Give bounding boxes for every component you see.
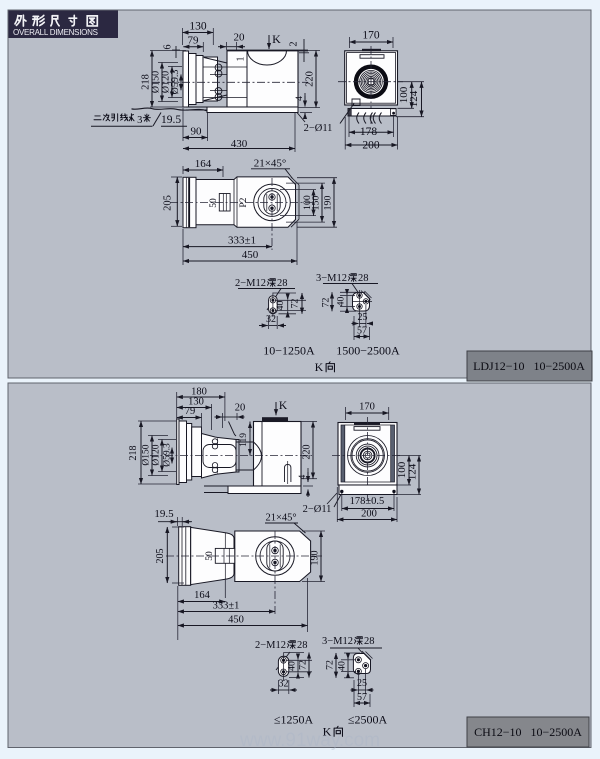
svg-text:1: 1 [236,57,247,62]
svg-text:190: 190 [323,196,334,211]
svg-text:K: K [272,32,281,46]
svg-text:450: 450 [242,249,259,261]
svg-text:205: 205 [155,549,166,564]
svg-text:79: 79 [185,406,196,417]
svg-text:200: 200 [361,509,377,520]
svg-text:10−1250A: 10−1250A [263,344,315,358]
svg-text:21×45°: 21×45° [265,513,296,524]
svg-text:2−Ø11: 2−Ø11 [304,123,333,134]
svg-text:4: 4 [297,474,307,479]
svg-text:218: 218 [128,446,139,461]
svg-text:220: 220 [305,71,316,87]
svg-text:130: 130 [189,21,207,33]
svg-text:333±1: 333±1 [213,601,240,612]
svg-text:40: 40 [287,661,298,671]
svg-text:3: 3 [137,115,142,126]
svg-text:OVERALL DIMENSIONS: OVERALL DIMENSIONS [13,28,98,37]
svg-text:28: 28 [358,273,369,284]
svg-text:430: 430 [231,138,248,150]
svg-text:CH12−10 10−2500A: CH12−10 10−2500A [474,725,582,739]
svg-text:≤1250A: ≤1250A [274,713,314,727]
svg-text:Ø150: Ø150 [142,444,152,465]
svg-text:≤2500A: ≤2500A [348,713,388,727]
svg-text:LDJ12−10 10−2500A: LDJ12−10 10−2500A [473,359,585,373]
svg-text:6: 6 [163,45,174,50]
svg-text:2−M12: 2−M12 [255,640,286,651]
svg-text:57: 57 [357,692,367,703]
svg-text:1500−2500A: 1500−2500A [336,344,400,358]
svg-text:170: 170 [362,30,380,42]
svg-text:205: 205 [163,195,174,211]
svg-text:40: 40 [336,297,347,307]
svg-text:28: 28 [297,640,308,651]
svg-text:119: 119 [239,433,249,447]
svg-text:124: 124 [408,90,420,107]
svg-text:19.5: 19.5 [154,508,174,520]
svg-text:21×45°: 21×45° [254,158,287,170]
svg-text:333±1: 333±1 [228,235,256,247]
svg-text:Ø59.3: Ø59.3 [170,70,181,95]
svg-text:170: 170 [359,402,375,413]
svg-text:72: 72 [321,298,332,308]
svg-text:90: 90 [191,126,203,138]
svg-text:57: 57 [357,326,367,337]
svg-text:20: 20 [234,32,246,44]
svg-text:3−M12: 3−M12 [322,636,353,647]
svg-text:28: 28 [364,636,375,647]
svg-text:K: K [279,400,288,412]
svg-text:2−M12: 2−M12 [235,278,266,289]
svg-text:28: 28 [277,278,288,289]
svg-text:150: 150 [311,196,322,211]
svg-text:220: 220 [302,445,313,460]
svg-text:450: 450 [228,615,244,626]
svg-text:40: 40 [275,301,286,311]
svg-text:124: 124 [407,463,419,480]
svg-text:3−M12: 3−M12 [316,273,347,284]
svg-text:72: 72 [298,660,309,670]
svg-text:Ø120: Ø120 [152,444,162,465]
svg-text:40: 40 [337,661,348,671]
svg-text:164: 164 [194,590,211,601]
svg-text:32: 32 [279,679,289,690]
svg-text:4: 4 [295,96,305,101]
svg-text:178±0.5: 178±0.5 [350,496,385,507]
svg-text:Ø59.3: Ø59.3 [163,443,173,467]
svg-text:2−Ø11: 2−Ø11 [303,504,332,515]
svg-text:164: 164 [195,158,212,170]
svg-text:72: 72 [290,299,301,309]
svg-text:32: 32 [266,314,276,325]
svg-text:72: 72 [325,660,336,670]
svg-text:200: 200 [362,140,380,152]
svg-text:25: 25 [357,678,367,689]
svg-text:20: 20 [235,403,246,414]
svg-text:19.5: 19.5 [161,114,181,126]
svg-text:K: K [315,360,324,374]
svg-text:25: 25 [358,312,368,323]
svg-text:190: 190 [310,551,321,566]
svg-text:www.91way.com: www.91way.com [239,730,380,751]
svg-text:79: 79 [188,35,200,47]
svg-text:2: 2 [289,42,300,47]
svg-text:178: 178 [360,126,378,138]
